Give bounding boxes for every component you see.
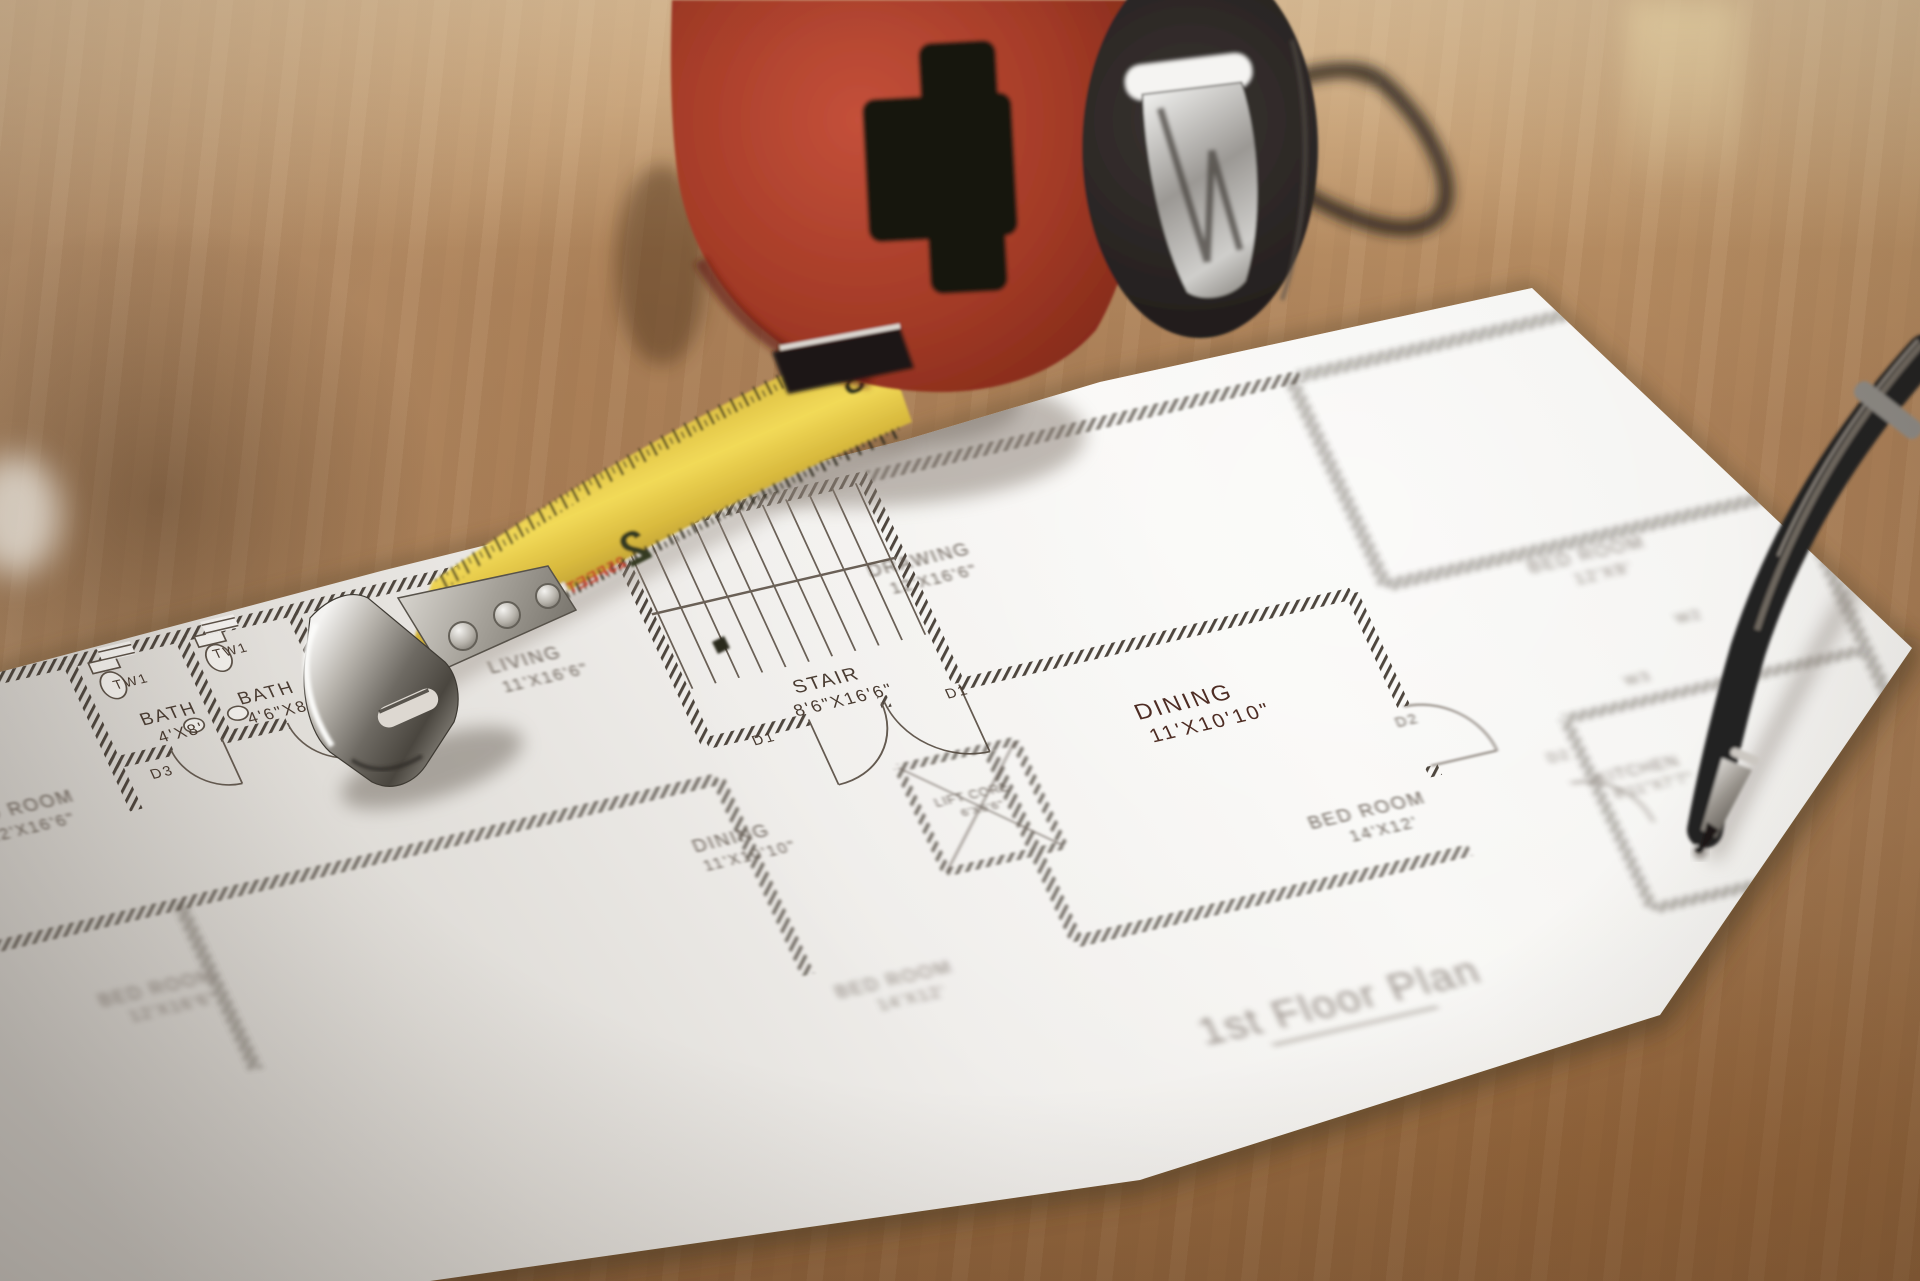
tape-measure-body bbox=[671, 0, 1318, 394]
photo-scene: BATH 4'X8' BATH 4'6"X8' STAIR 8'6"X16'6"… bbox=[0, 0, 1920, 1281]
scene-art: BATH 4'X8' BATH 4'6"X8' STAIR 8'6"X16'6"… bbox=[0, 0, 1920, 1281]
